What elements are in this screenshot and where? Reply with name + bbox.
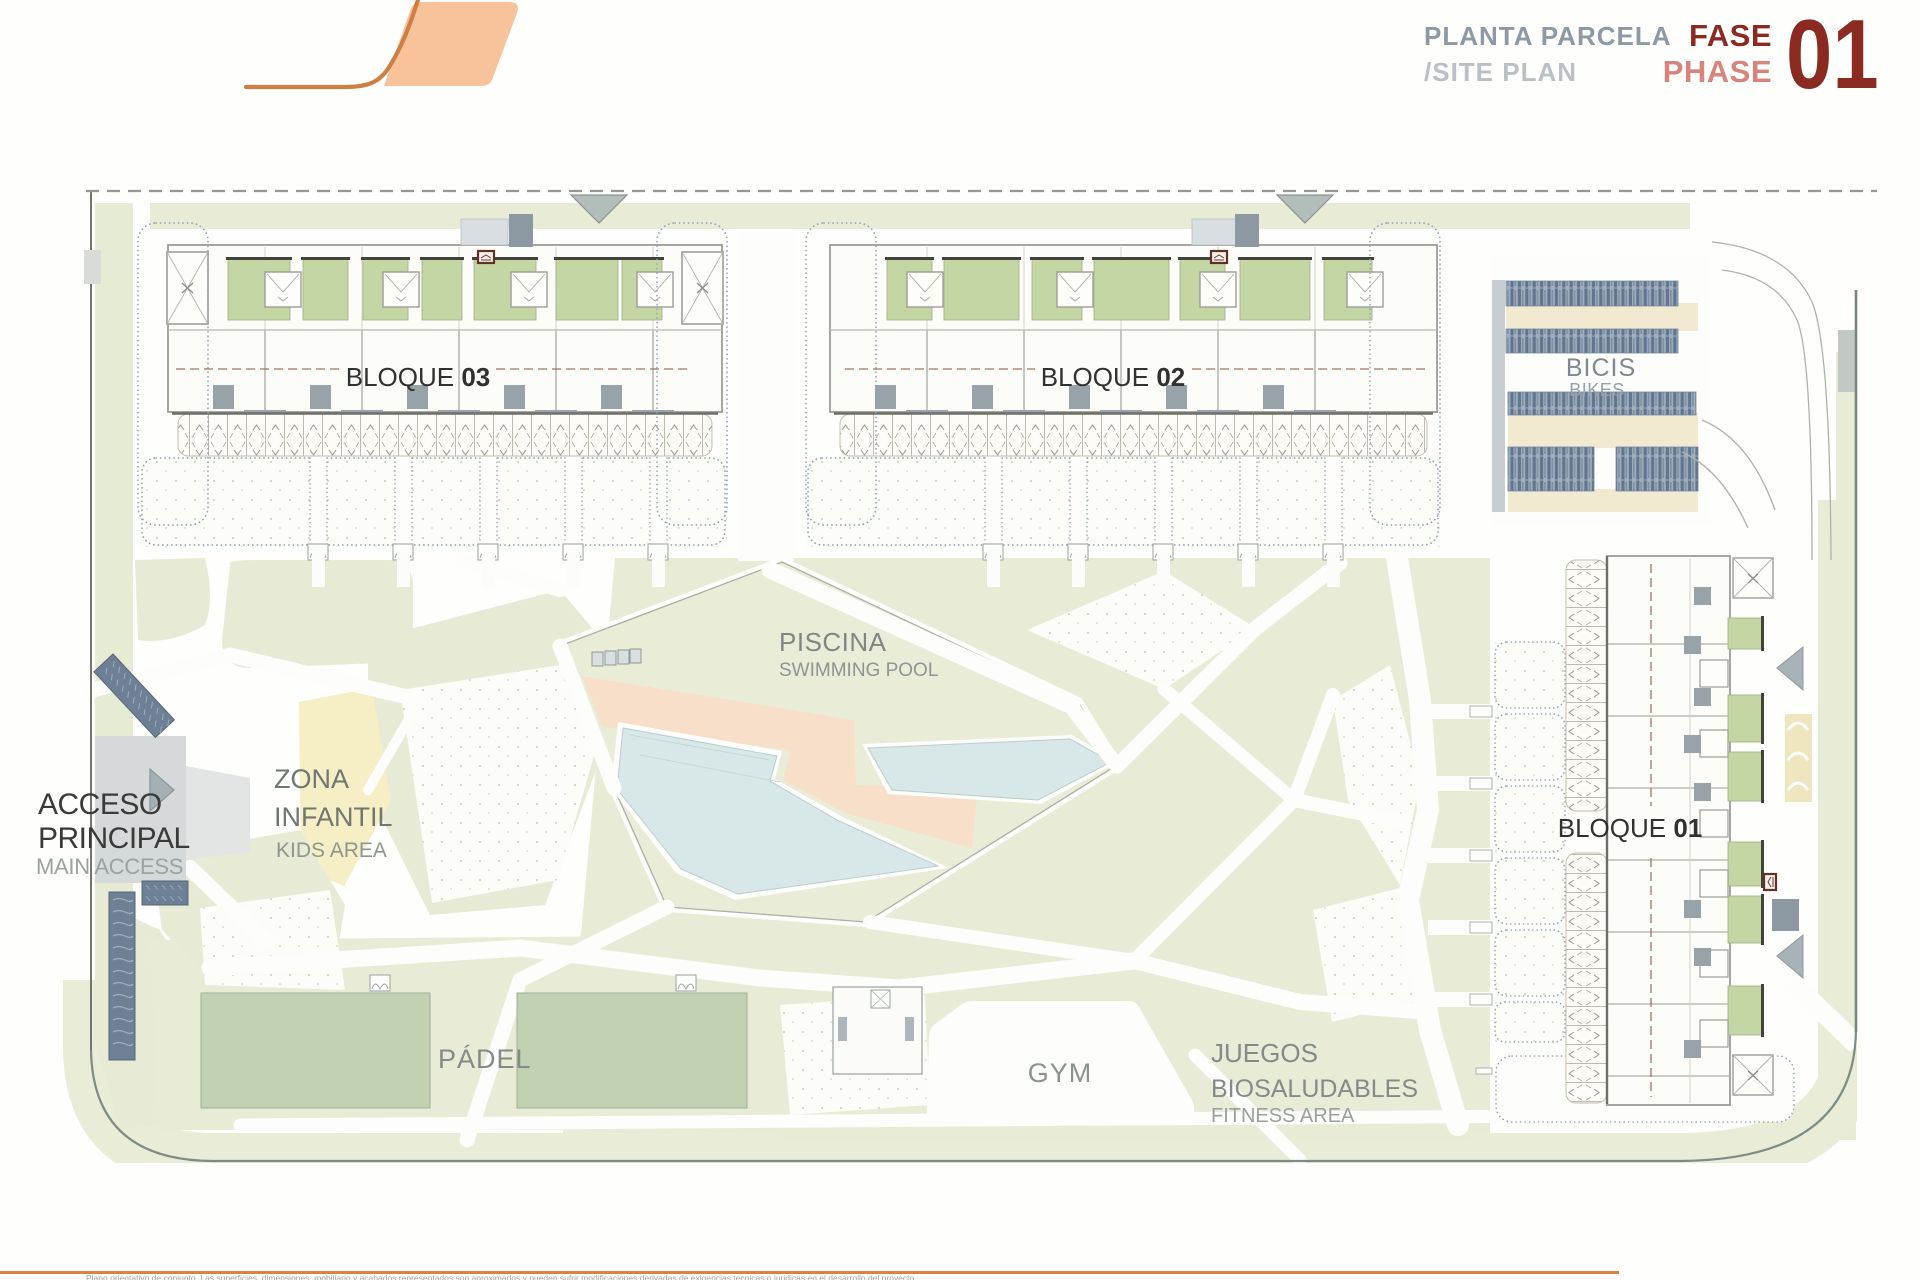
svg-text:BICIS: BICIS bbox=[1566, 354, 1636, 382]
svg-text:BLOQUE 02: BLOQUE 02 bbox=[1041, 362, 1186, 392]
svg-text:01: 01 bbox=[1786, 1, 1879, 110]
svg-text:PÁDEL: PÁDEL bbox=[438, 1044, 532, 1074]
svg-text:BLOQUE 01: BLOQUE 01 bbox=[1558, 813, 1703, 843]
svg-text:SWIMMING POOL: SWIMMING POOL bbox=[779, 660, 938, 681]
svg-text:PLANTA PARCELA: PLANTA PARCELA bbox=[1424, 21, 1672, 51]
svg-text:ACCESO: ACCESO bbox=[38, 788, 162, 821]
svg-text:KIDS AREA: KIDS AREA bbox=[276, 839, 387, 862]
svg-text:JUEGOS: JUEGOS bbox=[1211, 1038, 1318, 1068]
svg-text:PISCINA: PISCINA bbox=[779, 627, 887, 657]
svg-text:BIKES: BIKES bbox=[1569, 380, 1625, 400]
svg-text:/SITE PLAN: /SITE PLAN bbox=[1424, 57, 1577, 87]
svg-text:Plano orientativo de conjunto.: Plano orientativo de conjunto. Las super… bbox=[86, 1273, 917, 1280]
svg-text:FASE: FASE bbox=[1689, 18, 1772, 53]
svg-text:PRINCIPAL: PRINCIPAL bbox=[38, 822, 190, 855]
svg-text:FITNESS AREA: FITNESS AREA bbox=[1211, 1105, 1355, 1127]
svg-text:MAIN ACCESS: MAIN ACCESS bbox=[36, 854, 183, 879]
svg-text:GYM: GYM bbox=[1028, 1058, 1093, 1088]
svg-text:INFANTIL: INFANTIL bbox=[274, 802, 393, 832]
svg-text:ZONA: ZONA bbox=[274, 764, 349, 794]
svg-text:BLOQUE 03: BLOQUE 03 bbox=[346, 362, 491, 392]
svg-text:BIOSALUDABLES: BIOSALUDABLES bbox=[1211, 1075, 1418, 1103]
svg-text:PHASE: PHASE bbox=[1663, 54, 1772, 89]
